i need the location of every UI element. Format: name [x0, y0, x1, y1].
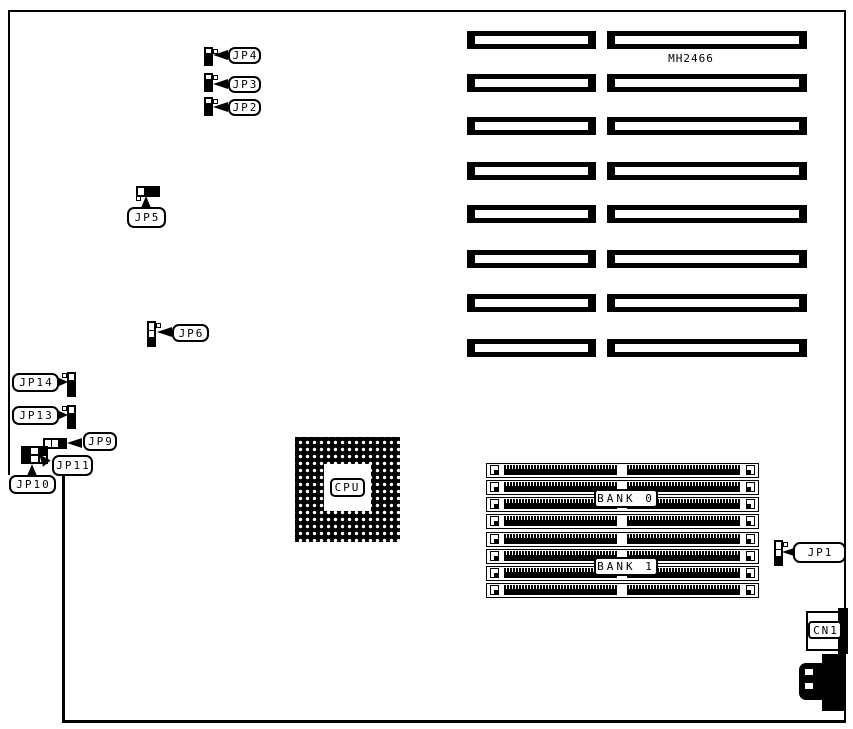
jp1-label: JP1 [808, 546, 834, 559]
bank0-text: BANK 0 [597, 492, 655, 505]
simm-latch-icon [490, 465, 499, 475]
simm-contacts [627, 585, 740, 595]
jumper-pin [149, 323, 154, 330]
callout-cn1: CN1 [808, 621, 842, 639]
simm-contacts [504, 585, 617, 595]
isa-slot [467, 294, 596, 312]
jumper-pin [23, 448, 29, 454]
jp4-label: JP4 [233, 49, 259, 62]
isa-slot [607, 250, 807, 268]
bank1-text: BANK 1 [597, 560, 655, 573]
slot-slit [615, 122, 799, 130]
slot-slit [475, 210, 588, 218]
slot-slit [475, 255, 588, 263]
cpu-socket: CPU [295, 437, 400, 542]
simm-contacts [504, 516, 617, 526]
isa-slot [607, 31, 807, 49]
slot-slit [615, 167, 799, 175]
jumper-pin [206, 85, 211, 90]
keyboard-connector [822, 654, 846, 711]
isa-slot [607, 117, 807, 135]
jp2-label: JP2 [233, 101, 259, 114]
slot-slit [615, 344, 799, 352]
jumper-jp6 [147, 321, 156, 347]
board-outline-step [62, 476, 65, 722]
simm-latch-icon [490, 516, 499, 526]
jumper-pin [31, 448, 37, 454]
isa-slot [607, 74, 807, 92]
isa-slot [467, 205, 596, 223]
jumper-jp13 [67, 405, 76, 429]
slot-slit [615, 36, 799, 44]
simm-latch-icon [490, 568, 499, 578]
simm-contacts [627, 465, 740, 475]
jumper-pin [776, 549, 781, 557]
jumper-pin [206, 109, 211, 114]
jumper-jp3 [204, 73, 213, 92]
simm-contacts [504, 534, 617, 544]
callout-jp3: JP3 [228, 76, 261, 93]
jumper-pin [144, 188, 151, 195]
callout-pointer [67, 438, 82, 448]
board-outline-bottom [62, 720, 846, 723]
simm-latch-icon [490, 534, 499, 544]
jumper-pin [776, 556, 781, 564]
jp5-label: JP5 [135, 211, 161, 224]
keyboard-connector-pin [803, 681, 815, 691]
isa-slot [467, 339, 596, 357]
isa-slot [467, 250, 596, 268]
slot-slit [615, 255, 799, 263]
slot-slit [475, 299, 588, 307]
jumper-pin [149, 330, 154, 338]
motherboard-diagram: MH2466 BANK 0 BANK 1 CPU JP4 JP3 JP2 JP5… [0, 0, 853, 729]
jp9-label: JP9 [88, 435, 114, 448]
isa-slot [607, 205, 807, 223]
jumper-pin [69, 413, 74, 420]
simm-socket [486, 532, 759, 547]
simm-socket [486, 514, 759, 529]
slot-slit [475, 344, 588, 352]
callout-jp10: JP10 [9, 475, 56, 494]
jumper-pin [69, 388, 74, 395]
jumper-pin [69, 380, 74, 387]
isa-slot [607, 162, 807, 180]
bank1-label: BANK 1 [594, 557, 658, 576]
jp10-label: JP10 [16, 478, 51, 491]
simm-latch-icon [490, 551, 499, 561]
jumper-pin [51, 440, 58, 447]
isa-slot [467, 74, 596, 92]
simm-latch-icon [746, 465, 755, 475]
simm-contacts [504, 465, 617, 475]
slot-slit [615, 79, 799, 87]
callout-jp4: JP4 [228, 47, 261, 64]
isa-slot [467, 162, 596, 180]
callout-pointer [213, 79, 228, 89]
slot-slit [475, 36, 588, 44]
simm-latch-icon [746, 568, 755, 578]
slot-slit [475, 122, 588, 130]
simm-latch-icon [746, 499, 755, 509]
jumper-pin [206, 59, 211, 64]
jumper-pin [149, 337, 154, 345]
keyboard-connector-pin [803, 667, 815, 677]
callout-pointer [213, 102, 228, 112]
jumper-pin [776, 542, 781, 549]
jumper-jp2 [204, 97, 213, 116]
board-outline-left [8, 10, 10, 475]
simm-latch-icon [746, 551, 755, 561]
isa-slot [607, 339, 807, 357]
callout-jp14: JP14 [12, 373, 59, 392]
bank0-label: BANK 0 [594, 489, 658, 508]
jp6-label: JP6 [179, 327, 205, 340]
jumper-pin [23, 456, 29, 462]
jp11-label: JP11 [56, 459, 91, 472]
callout-jp9: JP9 [83, 432, 117, 451]
isa-slot [467, 117, 596, 135]
cpu-socket-center: CPU [324, 464, 371, 511]
callout-jp6: JP6 [172, 324, 209, 342]
slot-slit [475, 79, 588, 87]
simm-contacts [627, 534, 740, 544]
callout-pointer [213, 50, 228, 60]
jp3-label: JP3 [233, 78, 259, 91]
jumper-pin [58, 440, 65, 447]
simm-latch-icon [490, 499, 499, 509]
isa-slot [467, 31, 596, 49]
jumper-pin [151, 188, 158, 195]
callout-jp2: JP2 [228, 99, 261, 116]
cpu-label: CPU [330, 478, 366, 497]
simm-socket [486, 463, 759, 478]
simm-latch-icon [746, 534, 755, 544]
callout-jp5: JP5 [127, 207, 166, 228]
jumper-jp14 [67, 372, 76, 397]
jumper-pin [69, 420, 74, 427]
model-number: MH2466 [641, 52, 741, 65]
isa-slot [607, 294, 807, 312]
simm-latch-icon [746, 516, 755, 526]
slot-slit [615, 299, 799, 307]
simm-latch-icon [746, 585, 755, 595]
jp14-label: JP14 [19, 376, 54, 389]
simm-latch-icon [490, 585, 499, 595]
simm-socket [486, 583, 759, 598]
board-outline-top [8, 10, 846, 12]
slot-slit [615, 210, 799, 218]
simm-latch-icon [490, 482, 499, 492]
simm-latch-icon [746, 482, 755, 492]
jumper-jp4 [204, 47, 213, 66]
jp13-label: JP13 [19, 409, 54, 422]
slot-slit [475, 167, 588, 175]
callout-jp1: JP1 [793, 542, 846, 563]
cn1-label: CN1 [813, 624, 839, 637]
callout-jp13: JP13 [12, 406, 59, 425]
callout-jp11: JP11 [52, 455, 93, 476]
callout-pointer [157, 327, 172, 337]
simm-contacts [627, 516, 740, 526]
